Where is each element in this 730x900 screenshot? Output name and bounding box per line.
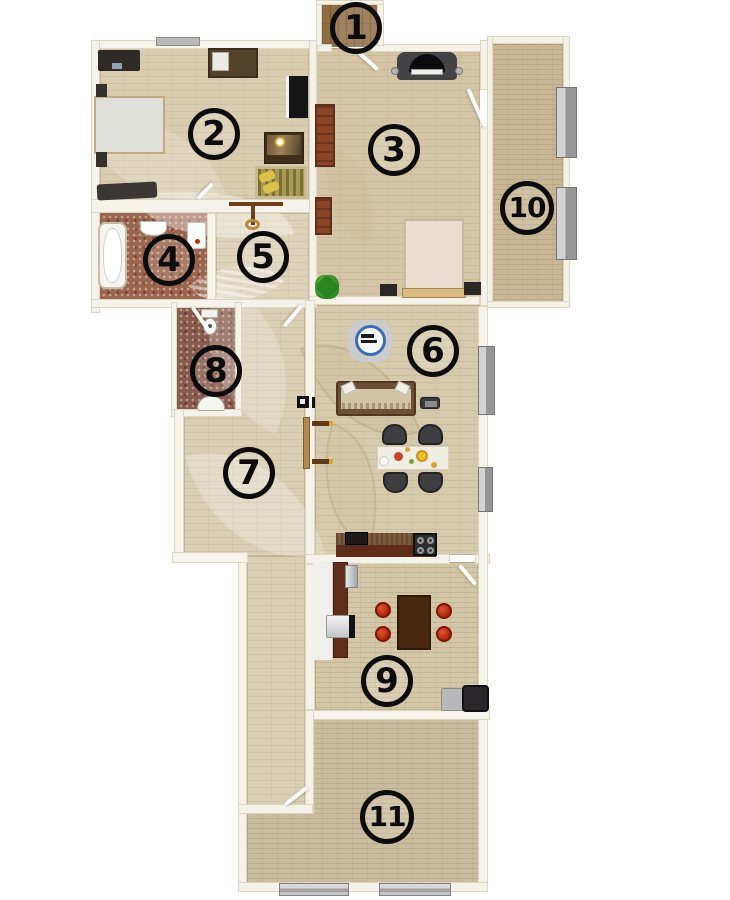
floor-plan-canvas: 1 2 3 4 5 6 7 8 9 10 11	[0, 0, 730, 900]
toilet-tank-icon	[201, 309, 218, 318]
wall	[91, 199, 317, 213]
wall	[305, 710, 314, 814]
bed-post-icon	[96, 84, 107, 97]
wall	[174, 409, 184, 561]
room-marker-9: 9	[361, 655, 413, 707]
piano-icon	[397, 52, 457, 80]
bookshelf-icon	[315, 104, 335, 167]
coat-rack-icon	[229, 202, 283, 206]
bathtub-icon	[98, 222, 127, 289]
food-dot-icon	[405, 447, 410, 452]
sofa-trim-icon	[342, 403, 410, 409]
wall	[487, 36, 570, 44]
button-dot-icon	[195, 239, 200, 244]
wall	[316, 0, 322, 46]
coat-rack-ring-icon	[245, 219, 260, 230]
room-marker-10: 10	[500, 181, 554, 235]
bookshelf-icon	[315, 197, 332, 235]
piano-knob-icon	[455, 67, 463, 75]
room-marker-6: 6	[407, 325, 459, 377]
clock-hand-icon	[361, 340, 377, 343]
radiator-icon	[556, 187, 577, 260]
cabinet-icon	[313, 562, 333, 660]
chair-icon	[375, 626, 391, 642]
wall	[207, 213, 216, 305]
chair-icon	[436, 603, 452, 619]
wall	[91, 40, 317, 49]
wall	[309, 40, 317, 305]
dresser-icon	[264, 132, 304, 164]
nightstand-icon	[464, 282, 481, 295]
wall	[238, 804, 313, 814]
appliance-box-icon	[441, 688, 464, 711]
chair-icon	[418, 424, 443, 445]
chair-icon	[436, 626, 452, 642]
wardrobe-icon	[289, 76, 308, 118]
window-icon	[478, 467, 493, 512]
wall	[238, 554, 247, 892]
food-dot-icon	[409, 459, 414, 464]
flower-icon	[275, 137, 285, 147]
door-leaf-icon	[303, 417, 310, 469]
window-icon	[156, 37, 200, 46]
room-marker-4: 4	[143, 234, 195, 286]
piano-keys-icon	[411, 69, 443, 75]
nightstand-icon	[380, 284, 397, 296]
window-icon	[379, 883, 451, 896]
burner-icon	[427, 537, 434, 544]
corridor-floor	[247, 556, 305, 806]
chair-icon	[212, 52, 229, 71]
plate-icon	[394, 452, 403, 461]
kitchen-sink-icon	[345, 532, 368, 545]
piano-knob-icon	[391, 67, 399, 75]
chair-icon	[375, 602, 391, 618]
wall	[487, 301, 570, 308]
room-marker-8: 8	[190, 345, 242, 397]
wall	[172, 552, 248, 563]
chair-icon	[382, 424, 407, 445]
intercom-icon	[297, 396, 309, 408]
appliance-box-icon	[462, 685, 489, 712]
room-marker-3: 3	[368, 124, 420, 176]
room-marker-11: 11	[360, 790, 414, 844]
bed-icon	[404, 219, 464, 291]
bed-icon	[94, 96, 165, 154]
tv-icon	[420, 397, 440, 409]
handle-bar-icon	[312, 459, 333, 464]
room-marker-1: 1	[330, 2, 382, 54]
wall	[487, 36, 493, 308]
bench-icon	[97, 181, 158, 200]
bathtub-basin-icon	[103, 228, 122, 283]
wall	[305, 710, 490, 720]
radiator-icon	[556, 87, 577, 158]
burner-icon	[427, 547, 434, 554]
burner-icon	[417, 537, 424, 544]
window-icon	[478, 346, 495, 415]
plate-icon	[416, 450, 428, 462]
room-marker-5: 5	[237, 231, 289, 283]
stove-icon	[413, 533, 437, 556]
wall	[91, 299, 317, 308]
bed-post-icon	[96, 152, 107, 167]
plate-icon	[379, 456, 389, 466]
fridge-icon	[345, 565, 358, 588]
wall	[371, 44, 489, 52]
sink-icon	[197, 396, 225, 411]
bed-footboard-icon	[402, 288, 466, 298]
room-marker-2: 2	[188, 108, 240, 160]
wall	[171, 302, 177, 417]
washer-door-icon	[349, 615, 355, 638]
table-icon	[397, 595, 431, 650]
food-dot-icon	[431, 462, 437, 468]
burner-icon	[417, 547, 424, 554]
hinge-icon	[312, 397, 315, 408]
room-10-floor	[492, 44, 563, 302]
clock-hand-icon	[361, 334, 374, 338]
room-marker-7: 7	[223, 447, 275, 499]
handle-bar-icon	[312, 421, 333, 426]
wall	[563, 36, 570, 308]
window-icon	[279, 883, 349, 896]
intercom-screen-icon	[300, 399, 305, 404]
tv-screen-icon	[425, 401, 437, 407]
desk-accessory-icon	[112, 63, 122, 69]
